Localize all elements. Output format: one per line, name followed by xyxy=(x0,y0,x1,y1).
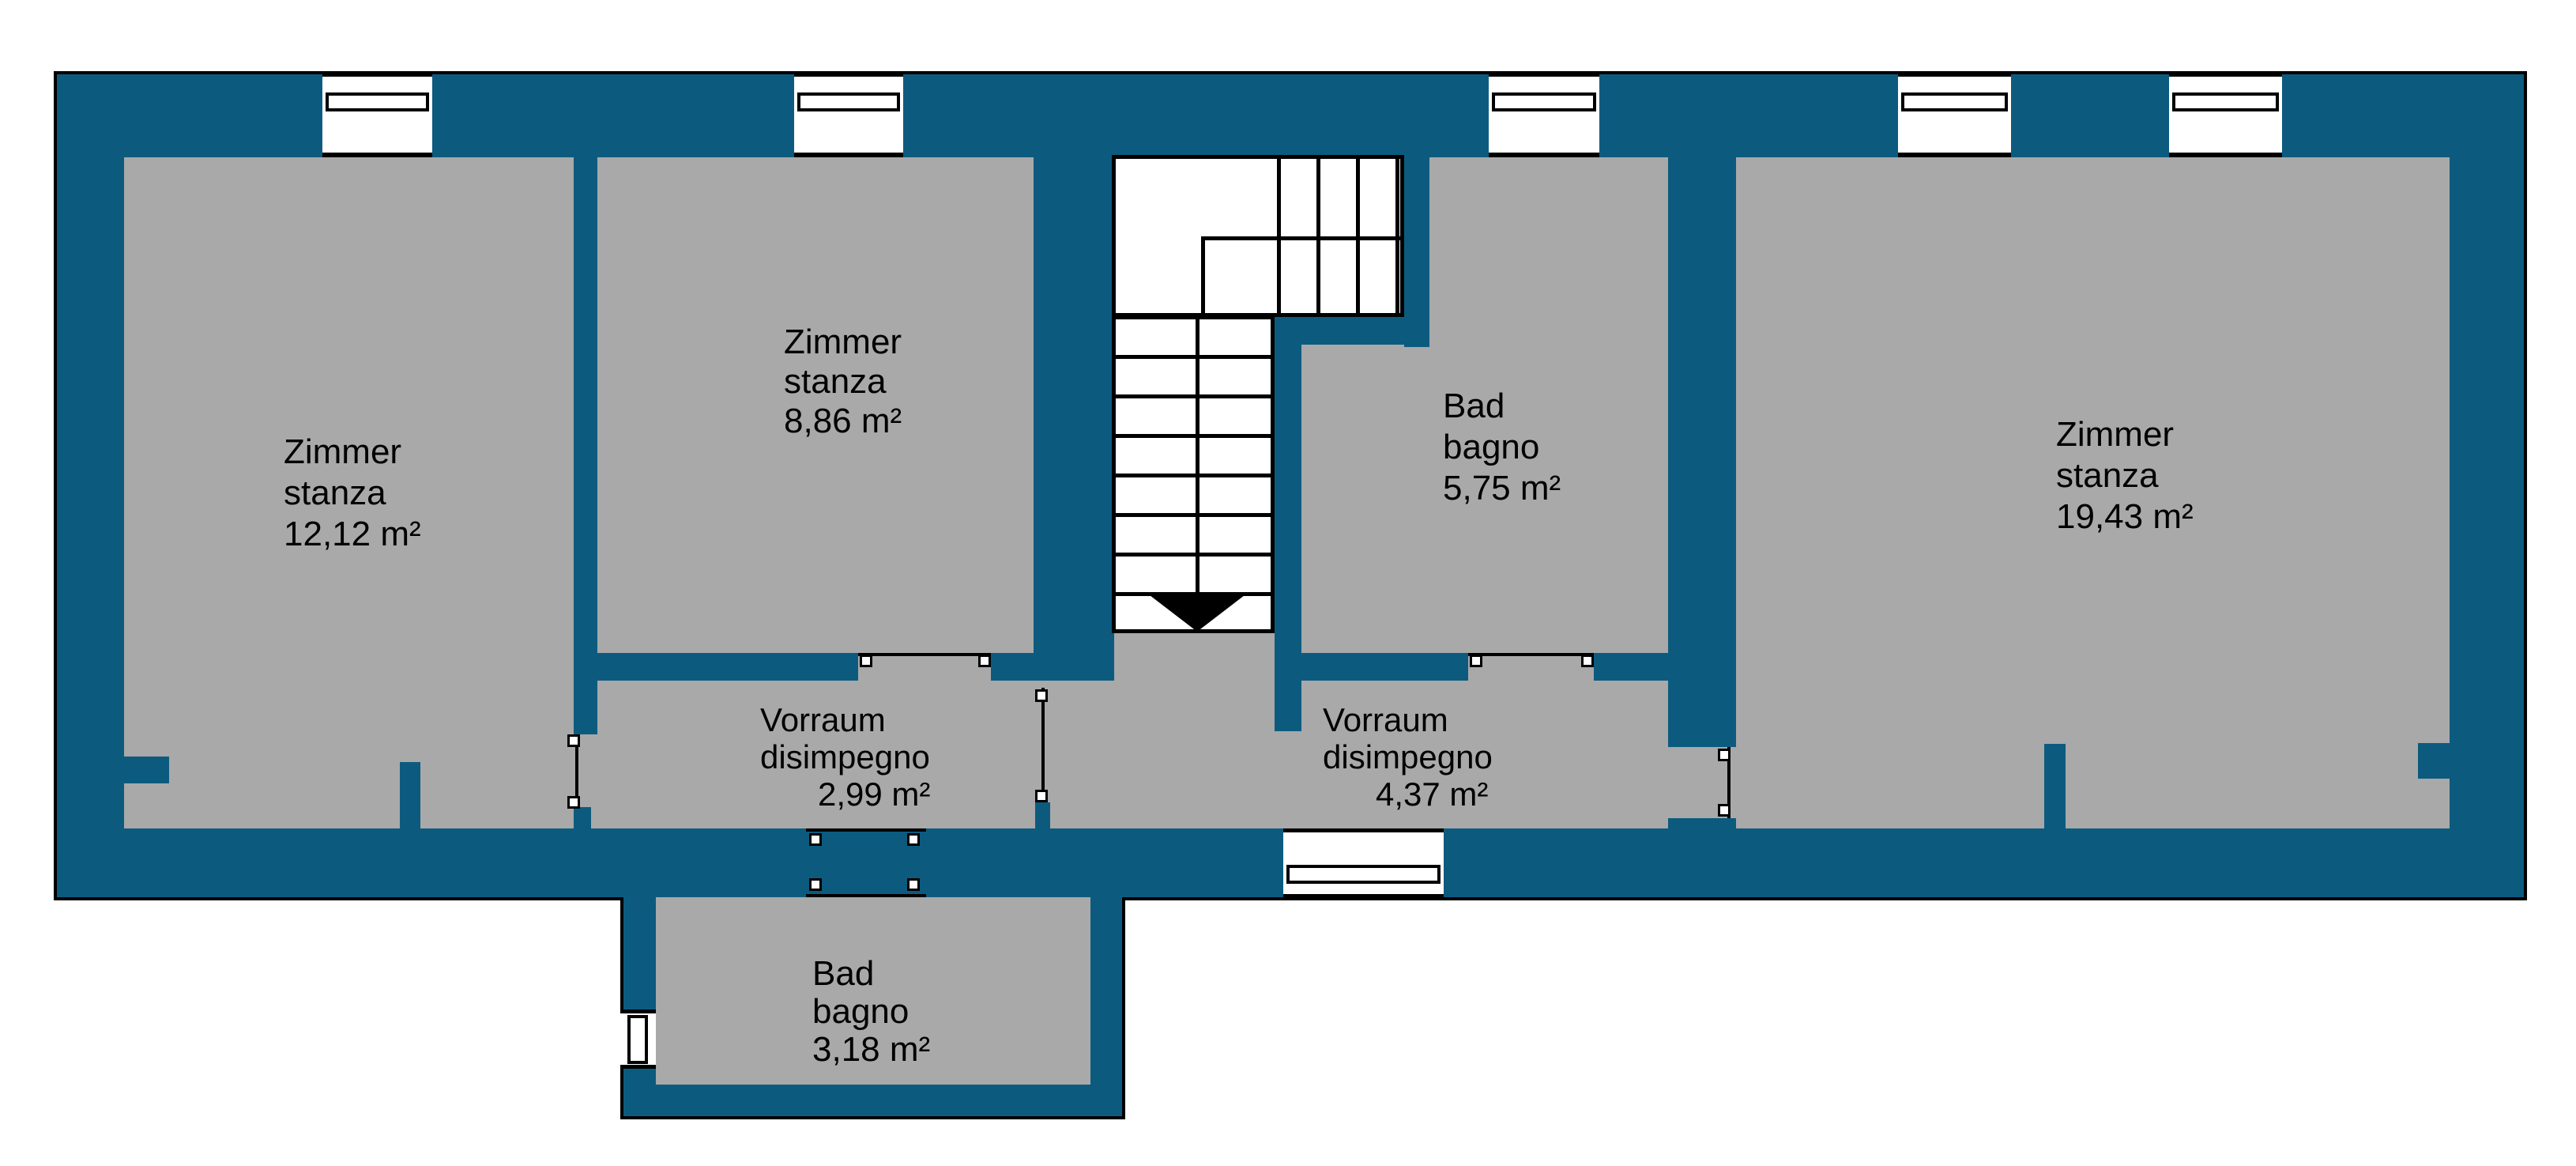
room-label-zimmer-19: Zimmer stanza 19,43 m² xyxy=(2056,414,2194,538)
stair-direction-arrow-icon xyxy=(1150,595,1245,632)
stair-tread-line xyxy=(1112,394,1275,398)
extension-wall-bottom xyxy=(623,1085,1122,1116)
room-area: 4,37 m² xyxy=(1376,775,1493,813)
window-4-sill xyxy=(1898,71,2011,77)
door-line-bath-extension-bottom xyxy=(806,894,926,897)
window-3-sill xyxy=(1489,71,1599,77)
door-frame-mark xyxy=(860,655,872,667)
window-4-sill xyxy=(1898,153,2011,157)
door-line-bath xyxy=(1468,653,1594,656)
window-5-glass xyxy=(2172,92,2279,111)
door-line-room2 xyxy=(858,653,991,656)
room-name-it: stanza xyxy=(2056,455,2194,496)
exterior-wall-right xyxy=(2450,74,2524,897)
door-frame-mark xyxy=(907,833,920,846)
room-label-zimmer-12: Zimmer stanza 12,12 m² xyxy=(284,432,421,555)
door-frame-mark xyxy=(1718,749,1731,761)
wall-bath-room4 xyxy=(1668,157,1736,828)
pier-east-wall xyxy=(2418,743,2450,779)
stair-mid-line xyxy=(1196,315,1199,596)
room-label-bad-5: Bad bagno 5,75 m² xyxy=(1443,386,1561,509)
window-south-sill xyxy=(1283,894,1444,899)
room-name-de: Zimmer xyxy=(784,323,902,362)
room-name-it: bagno xyxy=(812,993,930,1031)
stair-tread-line xyxy=(1112,434,1275,438)
pier-west-wall xyxy=(124,757,169,783)
door-frame-mark xyxy=(809,878,822,891)
wall-stair-bath xyxy=(1404,157,1429,347)
door-gap-bath xyxy=(1468,653,1594,681)
room-area: 2,99 m² xyxy=(818,775,930,813)
extension-wall-right xyxy=(1090,897,1122,1116)
room-area: 5,75 m² xyxy=(1443,468,1561,509)
wall-room1-room2 xyxy=(574,157,597,734)
stair-tread-line xyxy=(1112,355,1275,359)
door-frame-mark xyxy=(809,833,822,846)
door-frame-mark xyxy=(1470,655,1482,667)
stair-tread-line xyxy=(1112,513,1275,517)
room-area: 12,12 m² xyxy=(284,514,421,555)
window-1-glass xyxy=(326,92,429,111)
room-area: 8,86 m² xyxy=(784,402,902,441)
window-1-gap xyxy=(322,74,432,157)
window-1-sill xyxy=(322,71,432,77)
room-name-de: Zimmer xyxy=(284,432,421,473)
door-frame-mark xyxy=(978,655,991,667)
room-area: 19,43 m² xyxy=(2056,496,2194,538)
window-south-gap xyxy=(1283,828,1444,897)
window-extension-sill xyxy=(620,1009,656,1013)
door-frame-mark xyxy=(907,878,920,891)
door-frame-mark xyxy=(567,734,580,747)
room-name-it: disimpegno xyxy=(1323,738,1493,775)
extension-wall-left xyxy=(623,897,656,1116)
door-frame-mark xyxy=(567,796,580,809)
stair-tread-line xyxy=(1112,553,1275,557)
wall-stub-room1-south xyxy=(400,762,420,828)
window-3-gap xyxy=(1489,74,1599,157)
window-3-sill xyxy=(1489,153,1599,157)
room-name-de: Vorraum xyxy=(1323,701,1493,738)
window-2-sill xyxy=(794,71,903,77)
window-extension-sill xyxy=(620,1065,656,1069)
window-4-glass xyxy=(1901,92,2008,111)
window-south-glass xyxy=(1286,865,1441,884)
window-extension-glass xyxy=(627,1015,648,1064)
room-label-zimmer-8: Zimmer stanza 8,86 m² xyxy=(784,323,902,441)
room-name-de: Vorraum xyxy=(760,701,930,738)
door-gap-room2 xyxy=(858,653,991,681)
window-3-glass xyxy=(1492,92,1596,111)
room-label-vorraum-2: Vorraum disimpegno 2,99 m² xyxy=(760,701,930,813)
window-5-sill xyxy=(2169,71,2282,77)
wall-stair-east-strip xyxy=(1275,315,1301,731)
window-4-gap xyxy=(1898,74,2011,157)
room-name-it: stanza xyxy=(784,362,902,402)
wall-stub-room4-south xyxy=(2044,744,2066,828)
exterior-wall-left xyxy=(57,74,124,897)
wall-stub-room1-door xyxy=(574,807,591,828)
room-name-it: stanza xyxy=(284,473,421,514)
door-line-vorraum-divider xyxy=(1041,688,1045,802)
wall-room2-stairwell xyxy=(1034,157,1114,681)
door-frame-mark xyxy=(1718,804,1731,817)
stair-landing-line-v xyxy=(1201,236,1205,317)
stair-landing-line-h xyxy=(1201,236,1404,240)
stair-tread-line xyxy=(1112,474,1275,477)
room-label-vorraum-4: Vorraum disimpegno 4,37 m² xyxy=(1323,701,1493,813)
room-name-it: bagno xyxy=(1443,427,1561,468)
window-5-sill xyxy=(2169,153,2282,157)
door-line-bath-extension-top xyxy=(806,828,926,832)
door-frame-mark xyxy=(1035,790,1048,802)
room-label-bad-3: Bad bagno 3,18 m² xyxy=(812,955,930,1069)
room-name-it: disimpegno xyxy=(760,738,930,775)
window-1-sill xyxy=(322,153,432,157)
window-5-gap xyxy=(2169,74,2282,157)
wall-stub-vorraum-divider xyxy=(1035,802,1050,828)
door-frame-mark xyxy=(1035,689,1048,702)
door-frame-mark xyxy=(1581,655,1594,667)
room-name-de: Bad xyxy=(1443,386,1561,427)
window-2-gap xyxy=(794,74,903,157)
window-south-sill xyxy=(1283,828,1444,832)
window-2-glass xyxy=(797,92,900,111)
room-name-de: Bad xyxy=(812,955,930,993)
window-2-sill xyxy=(794,153,903,157)
room-area: 3,18 m² xyxy=(812,1031,930,1069)
floor-plan: Zimmer stanza 12,12 m² Zimmer stanza 8,8… xyxy=(0,0,2576,1166)
room-name-de: Zimmer xyxy=(2056,414,2194,455)
